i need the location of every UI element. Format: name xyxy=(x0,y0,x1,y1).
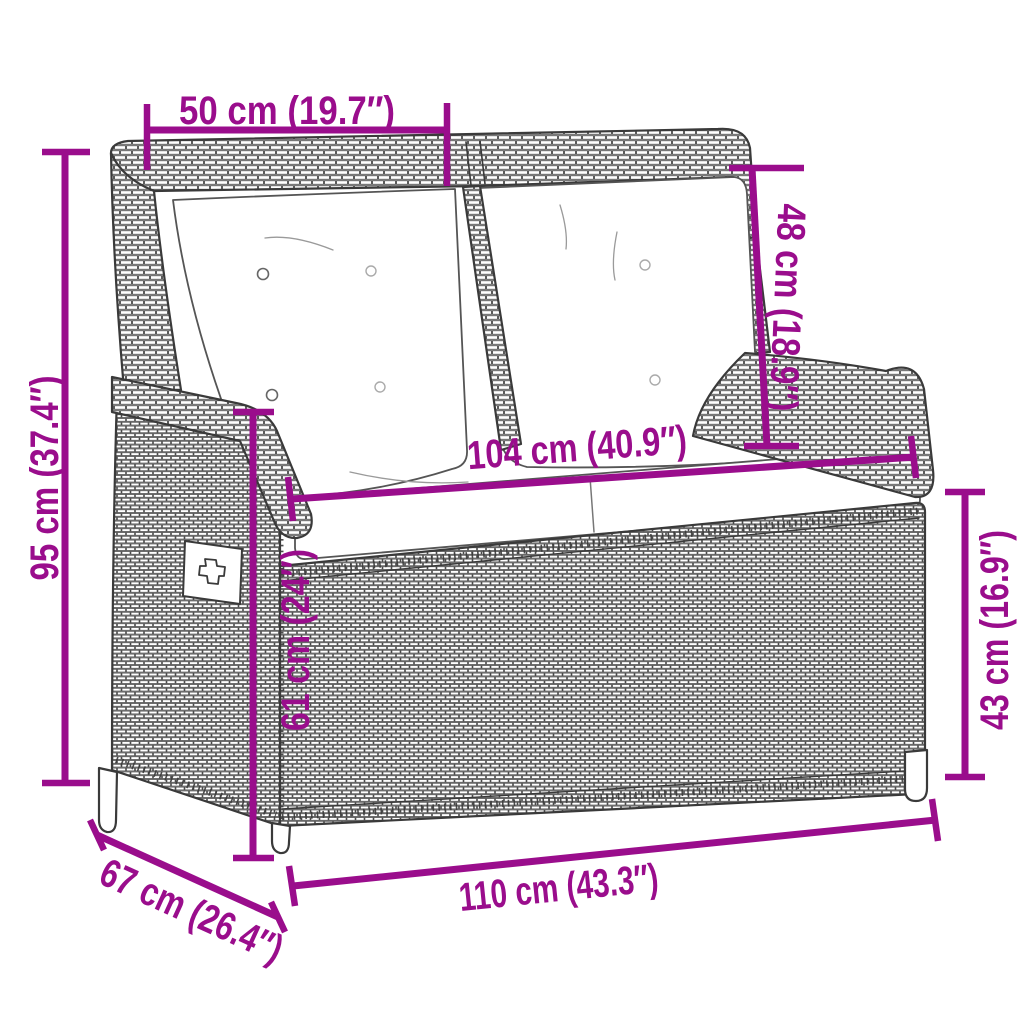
leg-back-left xyxy=(99,768,117,832)
cushion-button xyxy=(375,382,385,392)
dimension-label-box-side-height: 43 cm (16.9″) xyxy=(973,530,1017,730)
cushion-button xyxy=(640,260,650,270)
cushion-button xyxy=(258,269,269,280)
cushion-button xyxy=(267,390,278,401)
dimension-label-backrest-section-width: 50 cm (19.7″) xyxy=(179,89,395,133)
dimension-label-seat-front-height: 61 cm (24″) xyxy=(274,549,318,731)
leg-front-right xyxy=(905,750,927,801)
dimension-label-backrest-height: 48 cm (18.9″) xyxy=(760,203,813,413)
cushion-button xyxy=(366,266,376,276)
bench-line-drawing: 50 cm (19.7″) 95 cm (37.4″) 48 cm (18.9″… xyxy=(0,0,1024,1024)
dimension-label-total-height: 95 cm (37.4″) xyxy=(23,376,67,581)
cushion-button xyxy=(650,375,660,385)
leg-front-left xyxy=(272,823,290,853)
product-dimension-diagram: 50 cm (19.7″) 95 cm (37.4″) 48 cm (18.9″… xyxy=(0,0,1024,1024)
